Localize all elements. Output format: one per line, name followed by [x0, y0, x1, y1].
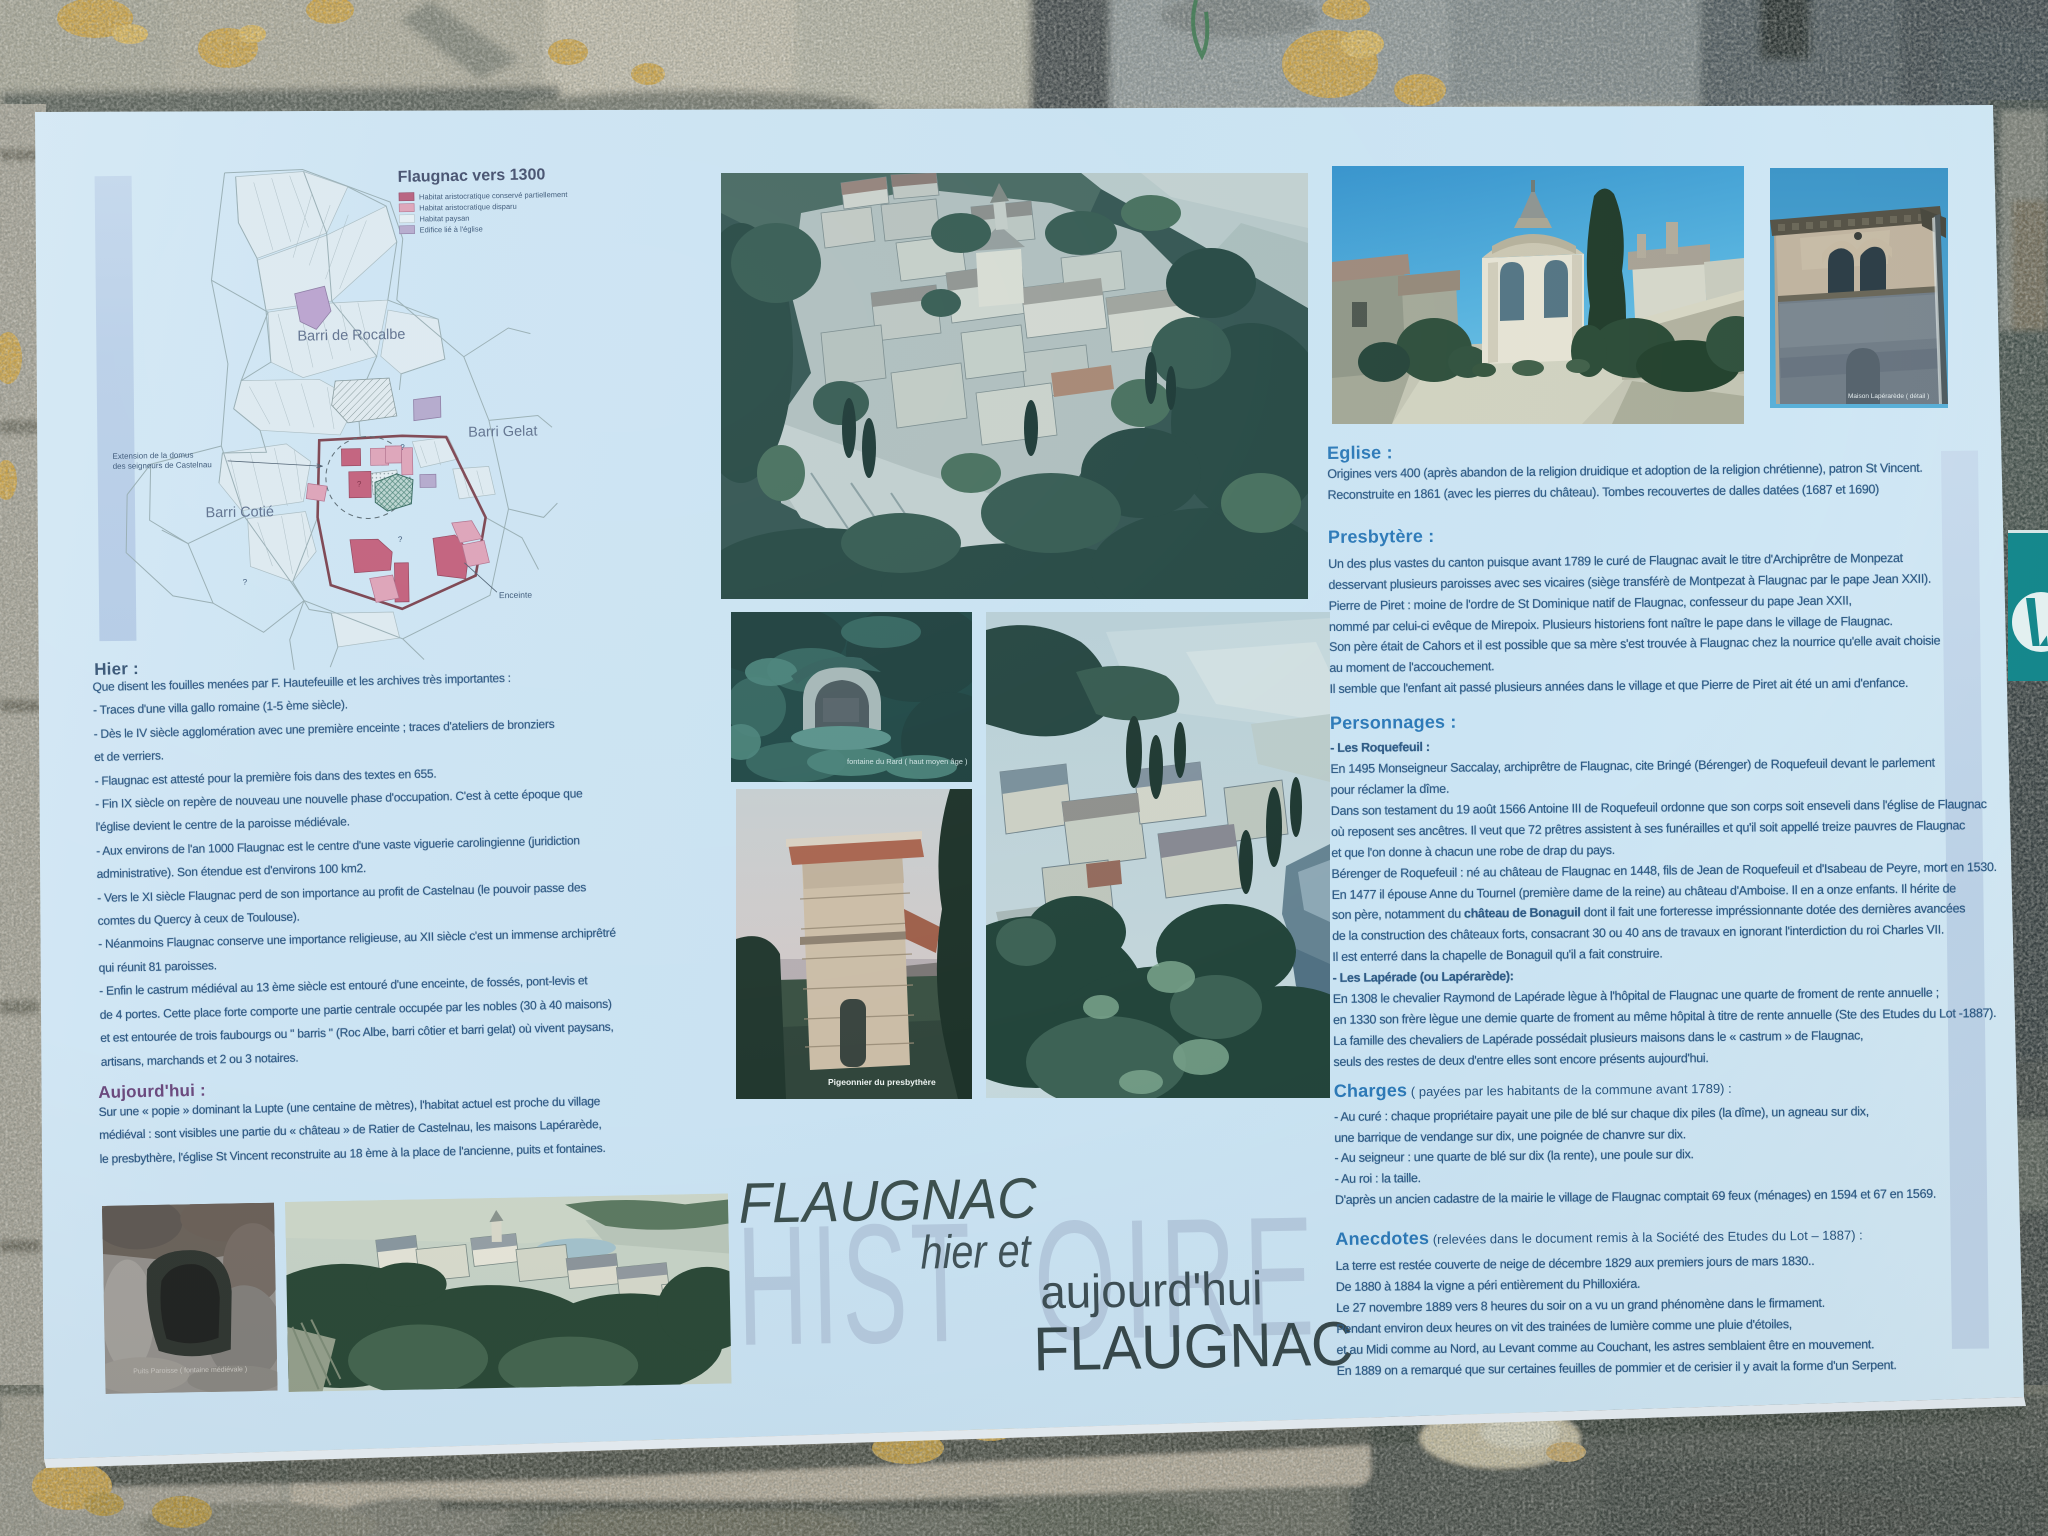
svg-text:des seigneurs de Castelnau: des seigneurs de Castelnau [113, 460, 212, 471]
svg-text:Maison Lapérarède ( détail ): Maison Lapérarède ( détail ) [1848, 393, 1929, 400]
svg-text:?: ? [398, 535, 403, 544]
svg-text:Pigeonnier du presbythère: Pigeonnier du presbythère [828, 1077, 936, 1087]
svg-text:Edifice lié à l'église: Edifice lié à l'église [420, 224, 483, 234]
svg-text:Habitat aristocratique disparu: Habitat aristocratique disparu [419, 202, 517, 213]
svg-text:Enceinte: Enceinte [499, 590, 533, 601]
svg-text:Barri de Rocalbe: Barri de Rocalbe [297, 327, 405, 345]
svg-text:?: ? [400, 443, 405, 452]
svg-text:Extension de la domus: Extension de la domus [112, 450, 193, 460]
svg-text:?: ? [357, 480, 362, 489]
svg-text:Habitat paysan: Habitat paysan [419, 214, 469, 224]
svg-text:hier et: hier et [920, 1224, 1033, 1279]
svg-text:Flaugnac vers 1300: Flaugnac vers 1300 [398, 166, 546, 186]
svg-text:?: ? [243, 578, 248, 587]
svg-text:Barri Gelat: Barri Gelat [468, 423, 538, 440]
svg-text:aujourd'hui: aujourd'hui [1040, 1261, 1263, 1318]
svg-text:Habitat aristocratique conserv: Habitat aristocratique conservé partiell… [419, 190, 568, 202]
svg-text:Barri Cotié: Barri Cotié [205, 504, 274, 521]
svg-text:FLAUGNAC: FLAUGNAC [1033, 1310, 1354, 1385]
